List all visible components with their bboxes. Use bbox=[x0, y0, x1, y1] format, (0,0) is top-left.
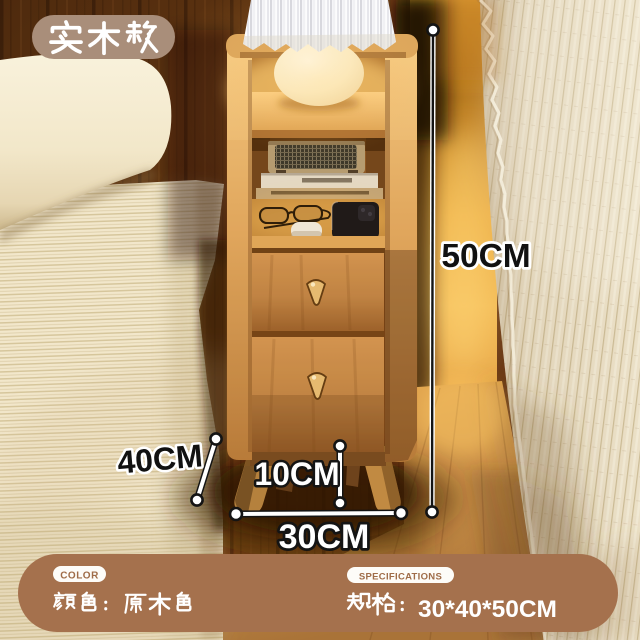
svg-text:40CM: 40CM bbox=[116, 437, 204, 480]
svg-text:10CM: 10CM bbox=[254, 456, 339, 492]
svg-text:30*40*50CM: 30*40*50CM bbox=[418, 596, 557, 623]
svg-text:COLOR: COLOR bbox=[60, 571, 99, 582]
svg-text:50CM: 50CM bbox=[441, 238, 530, 275]
svg-text:30CM: 30CM bbox=[279, 518, 370, 556]
svg-text:SPECIFICATIONS: SPECIFICATIONS bbox=[359, 572, 442, 583]
